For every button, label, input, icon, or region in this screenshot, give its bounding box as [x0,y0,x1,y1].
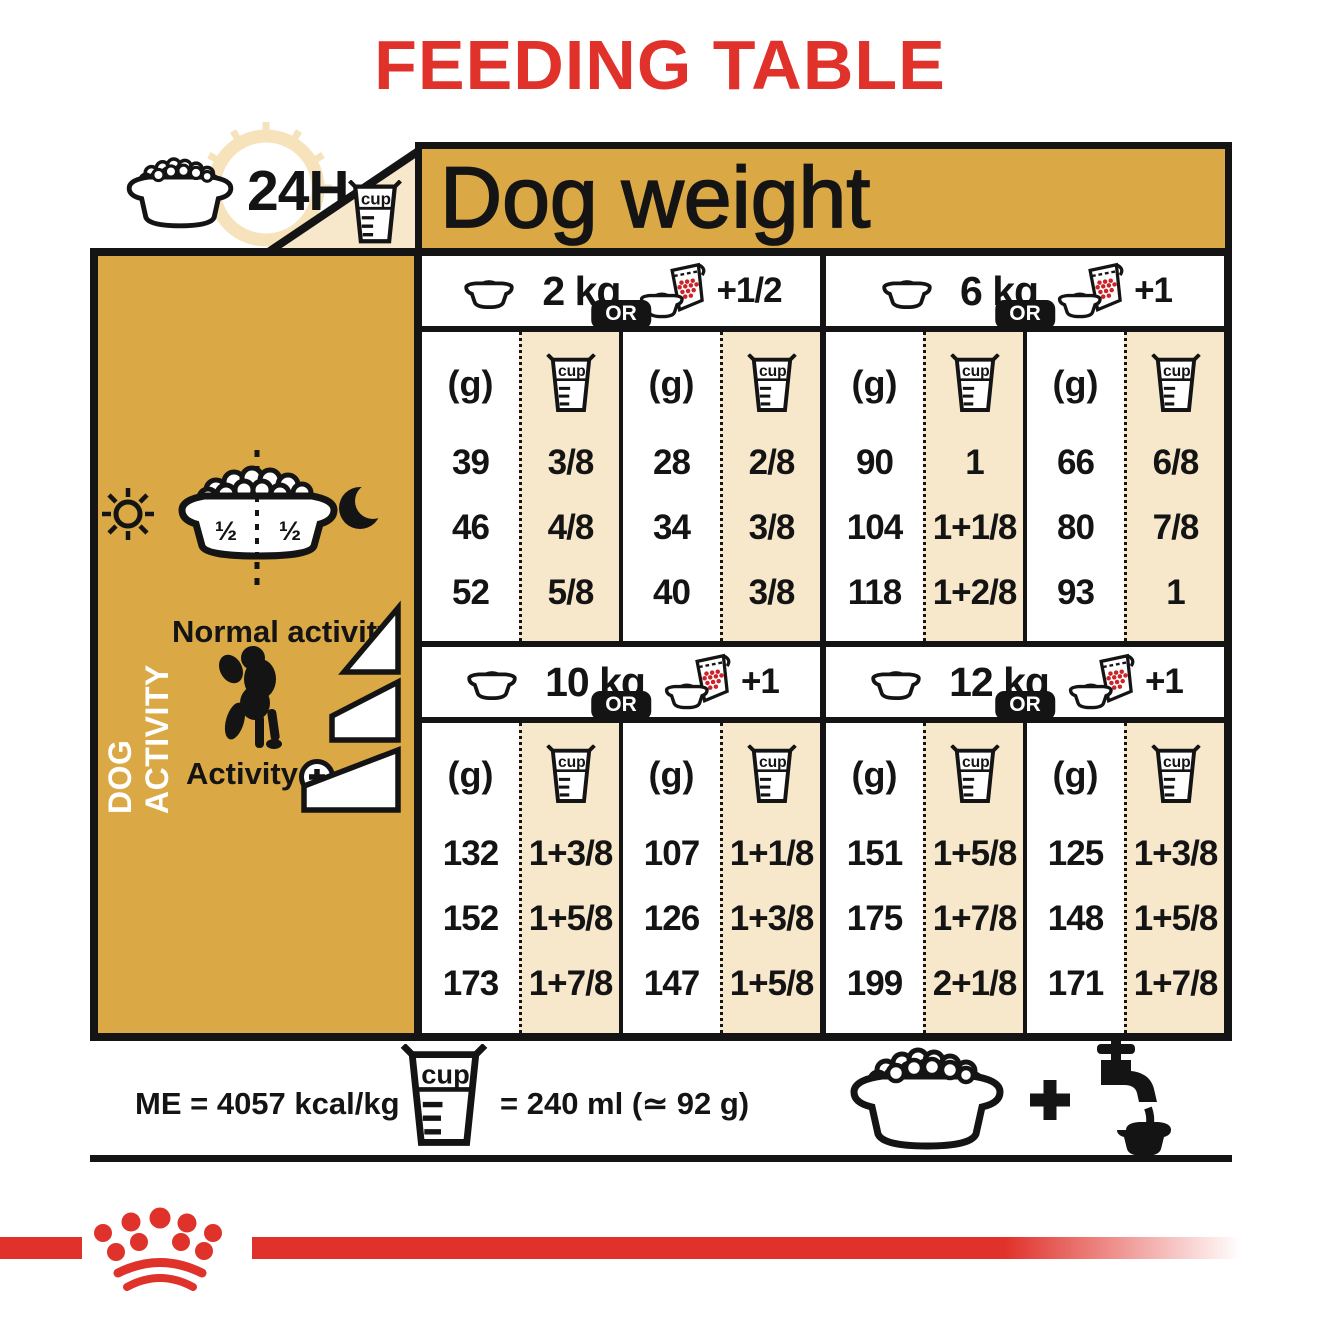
grams-unit-label: (g) [422,723,519,821]
ration-grams-value: 125 [1027,821,1124,886]
ration-cups-value: 1 [1127,560,1224,625]
dog-weight-title: Dog weight [440,149,870,248]
grams-unit-label: (g) [623,723,720,821]
measuring-cup-icon [746,744,798,806]
ration-cups-value: 6/8 [1127,430,1224,495]
ration-cups-value: 1+3/8 [723,886,820,951]
ration-grams-value: 40 [623,560,720,625]
ration-grams-value: 173 [422,951,519,1016]
grams-column: (g) 90 104 118 [826,332,923,641]
ration-cups-value: 3/8 [522,430,619,495]
ration-cups-value: 1+3/8 [522,821,619,886]
grams-column-mixed: (g) 66 80 93 [1023,332,1124,641]
ration-grams-value: 52 [422,560,519,625]
ration-cups-value: 3/8 [723,560,820,625]
ration-grid: (g) 132 152 173 1+3/8 1+5/8 1+7/8 (g) 10… [422,723,820,1033]
bowl-pouch-icon [1065,652,1141,712]
me-kcal-label: ME = 4057 kcal/kg [135,1086,400,1122]
ration-cups-value: 1+3/8 [1127,821,1224,886]
ration-grams-value: 152 [422,886,519,951]
extra-ration-label: +1 [1134,271,1172,311]
ration-cups-value: 7/8 [1127,495,1224,560]
cup-equivalence-label: = 240 ml (≃ 92 g) [500,1086,749,1122]
cups-column-mixed: 1+3/8 1+5/8 1+7/8 [1124,723,1224,1033]
ration-cups-value: 3/8 [723,495,820,560]
grams-column: (g) 132 152 173 [422,723,519,1033]
measuring-cup-icon [1150,744,1202,806]
extra-ration-label: +1 [1145,662,1183,702]
kibble-bowl-icon-large [838,1040,1016,1152]
measuring-cup-icon [1150,353,1202,415]
activity-level-triangles [292,598,406,816]
cups-column-mixed: 6/8 7/8 1 [1124,332,1224,641]
cups-column-mixed: 1+1/8 1+3/8 1+5/8 [720,723,820,1033]
plus-icon [1026,1076,1074,1124]
grams-column-mixed: (g) 28 34 40 [619,332,720,641]
cups-column-mixed: 2/8 3/8 3/8 [720,332,820,641]
grams-column-mixed: (g) 107 126 147 [619,723,720,1033]
or-badge: OR [591,300,651,329]
ration-grams-value: 107 [623,821,720,886]
grams-column: (g) 39 46 52 [422,332,519,641]
weight-header-2kg: 2 kg +1/2 OR [422,256,820,332]
ration-cups-value: 1+2/8 [926,560,1023,625]
brand-band-right [252,1237,1241,1259]
ration-grams-value: 66 [1027,430,1124,495]
measuring-cup-icon [545,744,597,806]
cups-column: 1 1+1/8 1+2/8 [923,332,1023,641]
grams-unit-label: (g) [422,332,519,430]
ration-grams-value: 46 [422,495,519,560]
ration-grams-value: 151 [826,821,923,886]
weight-header-6kg: 6 kg +1 OR [826,256,1224,332]
bowl-icon [460,272,518,310]
ration-grid: (g) 90 104 118 1 1+1/8 1+2/8 (g) 66 80 9… [826,332,1224,641]
sun-icon [100,486,156,542]
bowl-icon [463,663,521,701]
brand-band-left [0,1237,82,1259]
ration-grid: (g) 151 175 199 1+5/8 1+7/8 2+1/8 (g) 12… [826,723,1224,1033]
page-title: FEEDING TABLE [0,30,1320,100]
ration-grams-value: 171 [1027,951,1124,1016]
weight-header-10kg: 10 kg +1 OR [422,647,820,723]
measuring-cup-icon [346,180,404,246]
footer-divider-line [90,1155,1232,1162]
bowl-pouch-icon [661,652,737,712]
ration-cups-value: 1+7/8 [926,886,1023,951]
measuring-cup-icon [949,744,1001,806]
dog-activity-vertical-label: DOG ACTIVITY [102,600,176,814]
cups-column: 1+5/8 1+7/8 2+1/8 [923,723,1023,1033]
ration-cups-value: 1+5/8 [1127,886,1224,951]
ration-grams-value: 28 [623,430,720,495]
section-6kg: 6 kg +1 OR (g) 90 104 118 1 1+1/8 1+2/8 [826,256,1224,641]
half-left-label: ½ [215,516,238,546]
measuring-cup-icon [545,353,597,415]
ration-cups-value: 1+7/8 [1127,951,1224,1016]
grams-column-mixed: (g) 125 148 171 [1023,723,1124,1033]
dog-weight-header: Dog weight [415,142,1232,255]
ration-cups-value: 4/8 [522,495,619,560]
feeding-grid: 2 kg +1/2 OR (g) 39 46 52 3/8 4/8 5/8 [414,248,1232,1041]
ration-grams-value: 39 [422,430,519,495]
ration-grams-value: 126 [623,886,720,951]
grams-unit-label: (g) [623,332,720,430]
ration-cups-value: 2+1/8 [926,951,1023,1016]
ration-grams-value: 175 [826,886,923,951]
ration-cups-value: 5/8 [522,560,619,625]
bowl-icon [867,663,925,701]
measuring-cup-icon [949,353,1001,415]
poodle-icon [210,645,290,755]
ration-cups-value: 1+5/8 [926,821,1023,886]
ration-cups-value: 1+1/8 [926,495,1023,560]
measuring-cup-icon [746,353,798,415]
ration-grams-value: 90 [826,430,923,495]
cups-column: 3/8 4/8 5/8 [519,332,619,641]
bowl-icon [878,272,936,310]
ration-cups-value: 2/8 [723,430,820,495]
ration-grams-value: 34 [623,495,720,560]
ration-grams-value: 93 [1027,560,1124,625]
grams-column: (g) 151 175 199 [826,723,923,1033]
extra-ration-label: +1/2 [716,271,781,311]
bowl-pouch-icon [1054,261,1130,321]
measuring-cup-icon-large [398,1044,490,1150]
feeding-table-page: cup [0,0,1320,1320]
grams-unit-label: (g) [1027,723,1124,821]
ration-grid: (g) 39 46 52 3/8 4/8 5/8 (g) 28 34 40 [422,332,820,641]
ration-grams-value: 199 [826,951,923,1016]
water-tap-icon [1086,1036,1182,1158]
ration-grams-value: 147 [623,951,720,1016]
ration-grams-value: 132 [422,821,519,886]
activity-label: Activity [186,756,298,792]
half-ration-bowl-icon: ½ ½ [168,448,348,600]
half-right-label: ½ [279,516,302,546]
or-badge: OR [995,300,1055,329]
grams-unit-label: (g) [826,723,923,821]
ration-grams-value: 104 [826,495,923,560]
ration-cups-value: 1+5/8 [522,886,619,951]
ration-cups-value: 1+1/8 [723,821,820,886]
section-12kg: 12 kg +1 OR (g) 151 175 199 1+5/8 1+7/8 … [826,647,1224,1033]
section-2kg: 2 kg +1/2 OR (g) 39 46 52 3/8 4/8 5/8 [422,256,820,641]
ration-grams-value: 80 [1027,495,1124,560]
ration-cups-value: 1 [926,430,1023,495]
royal-canin-crown-logo [84,1198,248,1310]
section-10kg: 10 kg +1 OR (g) 132 152 173 1+3/8 1+5/8 … [422,647,820,1033]
or-badge: OR [995,691,1055,720]
extra-ration-label: +1 [741,662,779,702]
ration-cups-value: 1+5/8 [723,951,820,1016]
ration-grams-value: 148 [1027,886,1124,951]
grams-unit-label: (g) [826,332,923,430]
ration-cups-value: 1+7/8 [522,951,619,1016]
ration-grams-value: 118 [826,560,923,625]
weight-header-12kg: 12 kg +1 OR [826,647,1224,723]
cups-column: 1+3/8 1+5/8 1+7/8 [519,723,619,1033]
or-badge: OR [591,691,651,720]
kibble-bowl-icon [118,152,242,230]
grams-unit-label: (g) [1027,332,1124,430]
